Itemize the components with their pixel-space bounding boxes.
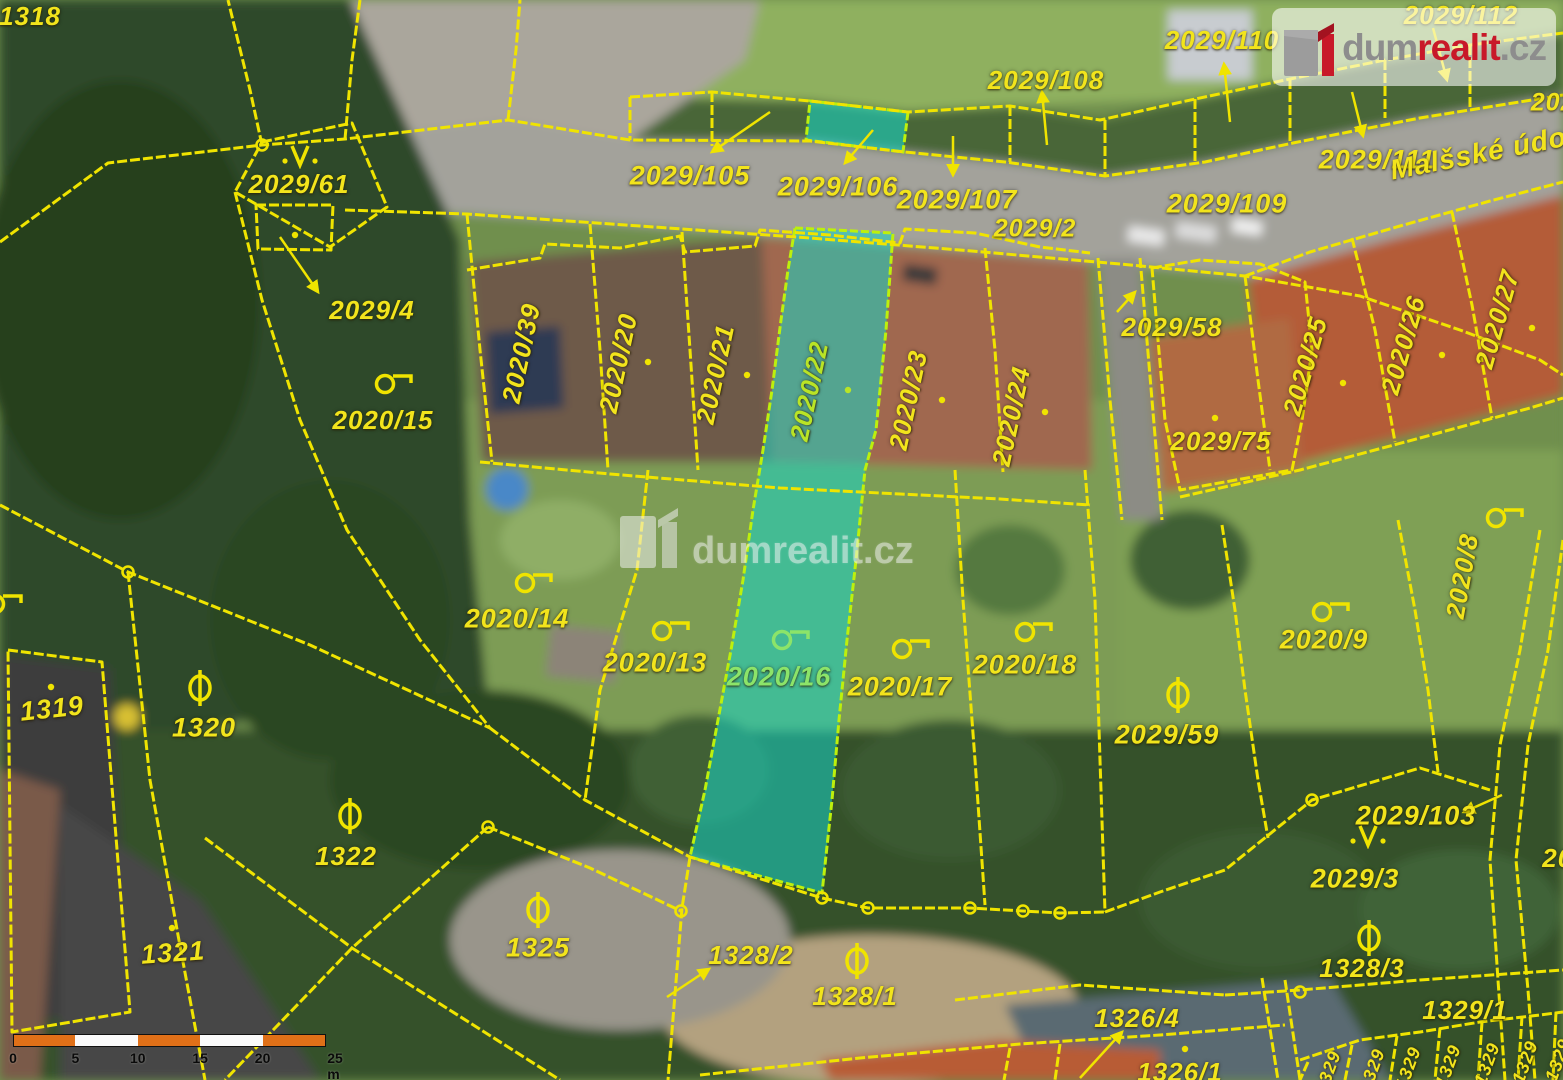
theta-symbol <box>842 941 872 986</box>
vee-symbol <box>1350 823 1386 854</box>
dumrealit-logo-icon <box>1282 16 1334 78</box>
scale-bar-tick-label: 20 <box>255 1050 271 1066</box>
parcel-label: 2020/13 <box>603 650 708 677</box>
vertex-symbol <box>254 137 270 158</box>
dot-symbol <box>743 366 751 384</box>
parcel-label: 1321 <box>140 937 206 968</box>
scale-bar-tick-label: 10 <box>130 1050 146 1066</box>
scale-bar-tick-label: 25 m <box>327 1050 343 1080</box>
parcel-label: 2029/4 <box>329 297 415 323</box>
dot-symbol <box>1181 1040 1189 1058</box>
scale-bar-segment <box>200 1034 262 1047</box>
parcel-label: 2020/17 <box>848 674 953 701</box>
parcel-label: 2029/59 <box>1115 722 1220 749</box>
parcel-label: 1326/4 <box>1094 1005 1180 1031</box>
dumrealit-logo[interactable]: dumrealit.cz <box>1272 8 1556 86</box>
vertex-symbol <box>1304 792 1320 813</box>
parcel-label: 2029/107 <box>897 187 1018 214</box>
map-scale-bar: 0510152025 m <box>8 1028 348 1072</box>
vertex-symbol <box>962 900 978 921</box>
parcel-label: 1318 <box>0 3 61 29</box>
parcel-label: 2029/75 <box>1171 428 1272 454</box>
vertex-symbol <box>1052 905 1068 926</box>
dot-symbol <box>1339 374 1347 392</box>
dot-symbol <box>644 353 652 371</box>
parcel-label: 1322 <box>315 843 377 869</box>
dot-symbol <box>47 678 55 696</box>
ring-symbol <box>1311 596 1351 629</box>
parcel-label: 1325 <box>506 935 570 962</box>
parcel-label: 2020/18 <box>973 652 1078 679</box>
parcel-label: 2029/106 <box>778 174 899 201</box>
parcel-label: 1326/1 <box>1137 1059 1223 1080</box>
parcel-label: 2029/58 <box>1122 314 1223 340</box>
ring-symbol <box>651 615 691 648</box>
theta-symbol <box>335 796 365 841</box>
dot-symbol <box>168 919 176 937</box>
scale-bar-segment <box>13 1034 76 1047</box>
scale-bar-segment <box>263 1034 326 1047</box>
parcel-label: 2029/61 <box>249 171 350 197</box>
parcel-label: 2029/108 <box>988 67 1104 93</box>
ring-symbol <box>1014 616 1054 649</box>
parcel-label: 1319 <box>19 692 86 726</box>
parcel-label: 2029/1 <box>1531 91 1563 116</box>
parcel-label: 2029/2 <box>994 217 1076 242</box>
ring-symbol <box>374 368 414 401</box>
vertex-symbol <box>1015 903 1031 924</box>
ring-symbol <box>891 633 931 666</box>
scale-bar-segment <box>138 1034 200 1047</box>
theta-symbol <box>1354 918 1384 963</box>
vertex-symbol <box>1292 984 1308 1005</box>
theta-symbol <box>1163 675 1193 720</box>
ring-symbol <box>1485 502 1525 535</box>
dot-symbol <box>1528 319 1536 337</box>
parcel-label: 2029/3 <box>1311 866 1400 893</box>
vertex-symbol <box>814 890 830 911</box>
dot-symbol <box>938 391 946 409</box>
vertex-symbol <box>673 903 689 924</box>
scale-bar-segment <box>75 1034 137 1047</box>
logo-text: dumrealit.cz <box>1342 29 1546 66</box>
dot-symbol <box>844 381 852 399</box>
theta-symbol <box>185 668 215 713</box>
dot-symbol <box>291 226 299 244</box>
parcel-label: 2020/14 <box>465 606 570 633</box>
vertex-symbol <box>120 564 136 585</box>
parcel-label: 1329/1 <box>1422 997 1508 1023</box>
parcel-label: 2020/15 <box>333 407 434 433</box>
vee-symbol <box>282 143 318 174</box>
theta-symbol <box>523 890 553 935</box>
ring-symbol <box>514 567 554 600</box>
vertex-symbol <box>860 900 876 921</box>
ring-symbol <box>771 624 811 657</box>
dot-symbol <box>1211 409 1219 427</box>
parcel-label: 1320 <box>172 715 236 742</box>
parcel-label: 2020/9 <box>1280 627 1369 654</box>
vertex-symbol <box>480 819 496 840</box>
scale-bar-tick-label: 0 <box>9 1050 17 1066</box>
parcel-label: 2020/16 <box>727 664 832 691</box>
parcel-label: 2029/110 <box>1165 27 1280 53</box>
scale-bar-tick-label: 15 <box>192 1050 208 1066</box>
ring-symbol <box>0 588 24 621</box>
parcel-label: 2029/2 <box>1542 845 1563 871</box>
scale-bar-tick-label: 5 <box>71 1050 79 1066</box>
parcel-label: 2029/109 <box>1167 191 1288 218</box>
parcel-label: 1328/1 <box>812 983 898 1009</box>
dot-symbol <box>1438 346 1446 364</box>
parcel-label: 2029/105 <box>630 163 751 190</box>
dot-symbol <box>1041 403 1049 421</box>
cadastral-map[interactable]: 13182029/1122029/1102029/1082029/12029/1… <box>0 0 1563 1080</box>
parcel-label: 1328/2 <box>708 942 794 968</box>
